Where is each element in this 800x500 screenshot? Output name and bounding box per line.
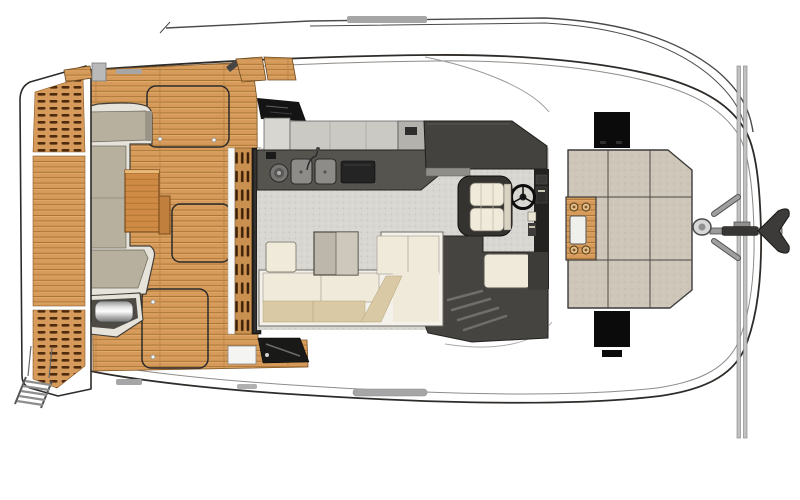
cooktop xyxy=(341,161,375,183)
deck-plan-canvas xyxy=(0,0,800,500)
sliding-door xyxy=(228,148,261,334)
side-deck-handrail xyxy=(116,69,142,74)
side-deck-handrail xyxy=(353,389,427,396)
galley-cabinet xyxy=(264,118,290,152)
salon-table xyxy=(314,232,358,275)
copilot-bench xyxy=(484,254,530,288)
sofa-armrest xyxy=(146,111,152,141)
helm-seat xyxy=(458,176,512,236)
anchor xyxy=(758,209,789,253)
sunpad-teak-insert xyxy=(566,197,596,260)
side-deck-handrail xyxy=(116,379,142,385)
roof-handrail xyxy=(347,16,427,23)
foredeck-hatch xyxy=(594,112,630,148)
insert-hatch xyxy=(570,216,586,244)
overhead-cabinets xyxy=(290,121,398,152)
deck-plan-page xyxy=(0,0,800,500)
ottoman xyxy=(266,242,296,272)
grill-cylinder xyxy=(95,301,133,322)
cabinet-handle xyxy=(405,127,417,135)
foredeck-hatch xyxy=(594,311,630,347)
side-deck-step xyxy=(264,57,296,80)
foredeck-sunpad xyxy=(566,150,692,308)
